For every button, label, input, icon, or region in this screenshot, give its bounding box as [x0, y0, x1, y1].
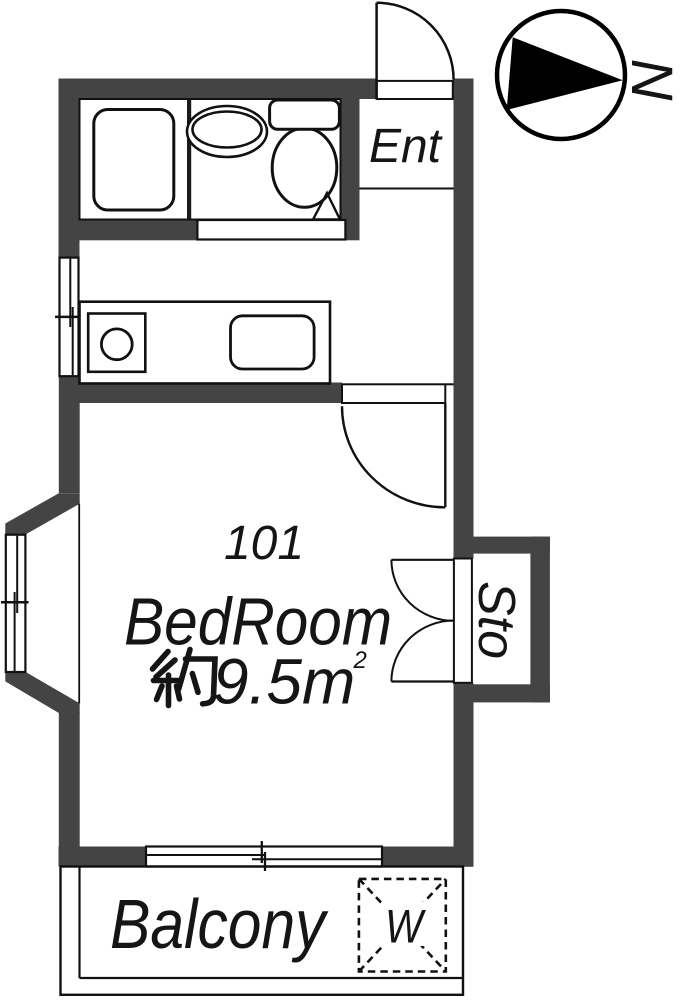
svg-text:Balcony: Balcony: [110, 885, 329, 963]
svg-text:Sto: Sto: [467, 581, 525, 659]
svg-text:9.5m: 9.5m: [213, 646, 355, 718]
svg-text:N: N: [619, 59, 683, 101]
svg-text:W: W: [385, 902, 426, 954]
svg-text:2: 2: [353, 647, 367, 674]
svg-text:101: 101: [224, 517, 304, 570]
svg-text:Ent: Ent: [369, 120, 443, 173]
